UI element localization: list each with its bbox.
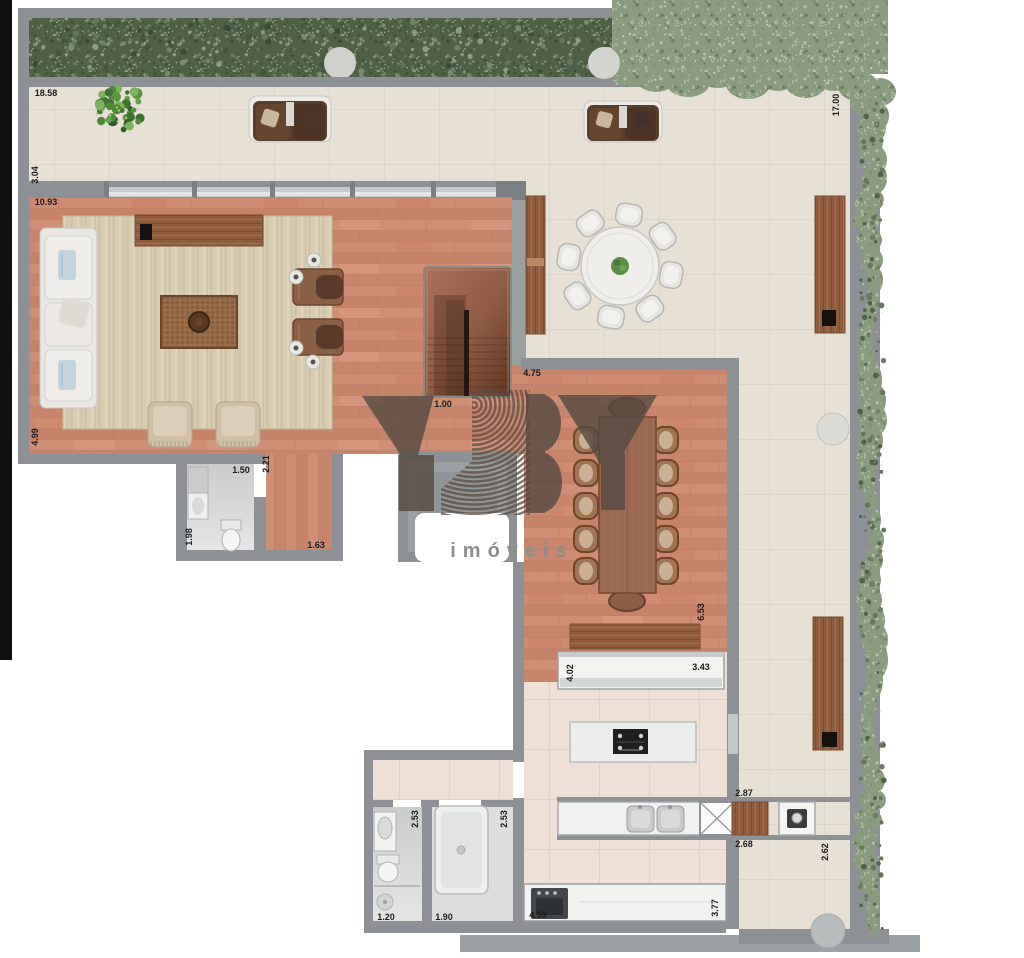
svg-text:1.20: 1.20 [377,912,395,922]
svg-text:2.53: 2.53 [410,810,420,828]
svg-text:1.90: 1.90 [435,912,453,922]
svg-text:4.75: 4.75 [523,368,541,378]
svg-text:17.00: 17.00 [831,94,841,117]
svg-text:1.63: 1.63 [307,540,325,550]
svg-text:4.59: 4.59 [529,910,547,920]
svg-text:imóveis: imóveis [450,540,573,562]
svg-text:4.02: 4.02 [565,664,575,682]
svg-text:3.77: 3.77 [710,899,720,917]
svg-text:10.93: 10.93 [35,197,58,207]
svg-text:3.43: 3.43 [692,662,710,672]
svg-text:3.04: 3.04 [30,166,40,184]
svg-text:2.62: 2.62 [820,843,830,861]
svg-text:2.87: 2.87 [735,788,753,798]
svg-text:4.99: 4.99 [30,428,40,446]
svg-text:1.00: 1.00 [434,399,452,409]
svg-text:1.98: 1.98 [184,528,194,546]
svg-text:6.53: 6.53 [696,603,706,621]
svg-text:18.58: 18.58 [35,88,58,98]
svg-text:1.50: 1.50 [232,465,250,475]
svg-text:2.53: 2.53 [499,810,509,828]
svg-text:2.68: 2.68 [735,839,753,849]
svg-text:2.21: 2.21 [261,455,271,473]
